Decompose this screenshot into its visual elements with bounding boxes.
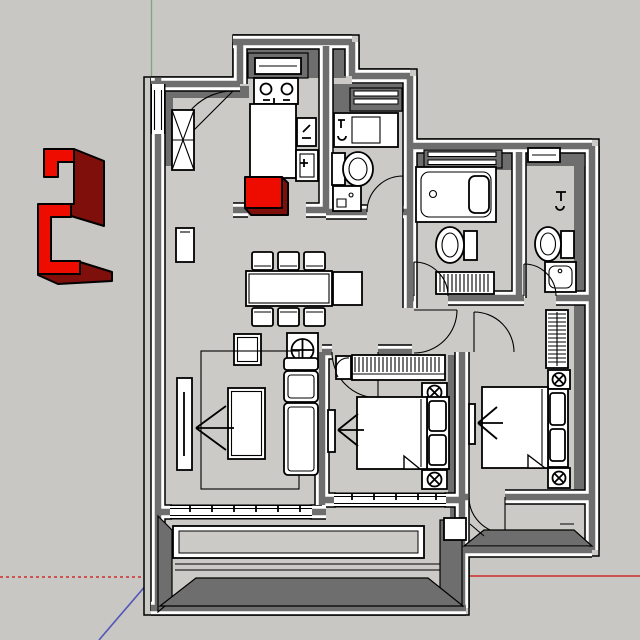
chair[interactable]	[304, 308, 325, 326]
kitchen-sink[interactable]	[296, 150, 318, 181]
window-slat	[354, 99, 398, 104]
coffee-table[interactable]	[228, 388, 265, 459]
sofa-armrest	[284, 358, 318, 370]
cutting-board[interactable]	[297, 118, 316, 146]
towel-radiator[interactable]	[436, 272, 494, 294]
vanity-counter[interactable]	[334, 113, 398, 147]
window-slat	[428, 152, 496, 157]
bed[interactable]	[482, 387, 548, 468]
tv-bedroom-2[interactable]	[469, 404, 475, 444]
chair[interactable]	[252, 308, 273, 326]
closet-shelf[interactable]	[336, 356, 351, 379]
nightstand[interactable]	[422, 470, 447, 489]
model-scene[interactable]	[0, 0, 640, 640]
pillow	[429, 435, 446, 465]
pillow	[550, 429, 565, 461]
wall-panel[interactable]	[176, 228, 194, 262]
balcony-1[interactable]	[158, 516, 466, 612]
balcony-railing[interactable]	[160, 578, 463, 606]
bed[interactable]	[357, 397, 427, 469]
chair[interactable]	[252, 252, 273, 270]
viewport-canvas[interactable]	[0, 0, 640, 640]
sofa-chaise[interactable]	[284, 403, 318, 475]
selected-box[interactable]	[245, 177, 282, 208]
chair[interactable]	[278, 252, 299, 270]
toilet-bowl[interactable]	[343, 152, 373, 186]
red-shape-side-face[interactable]	[71, 149, 104, 226]
window-slat	[354, 91, 398, 96]
tv-bedroom-1[interactable]	[328, 410, 335, 452]
toilet-bowl[interactable]	[535, 227, 561, 261]
nightstand[interactable]	[548, 370, 570, 389]
toilet-bowl[interactable]	[436, 227, 464, 263]
balcony-planter-inner	[179, 531, 418, 553]
dining-end-table[interactable]	[333, 272, 362, 305]
dining-table[interactable]	[246, 271, 332, 306]
chair[interactable]	[278, 308, 299, 326]
pillow	[429, 401, 446, 431]
balcony-niche	[444, 518, 466, 540]
balcony-railing[interactable]	[464, 530, 592, 546]
window-slat	[428, 160, 496, 165]
chair[interactable]	[304, 252, 325, 270]
kitchen-counter[interactable]	[250, 104, 296, 178]
sofa[interactable]	[284, 358, 318, 475]
pillow	[550, 393, 565, 425]
nightstand[interactable]	[548, 468, 570, 488]
toilet-tank[interactable]	[464, 231, 477, 260]
toilet-tank[interactable]	[561, 231, 574, 258]
